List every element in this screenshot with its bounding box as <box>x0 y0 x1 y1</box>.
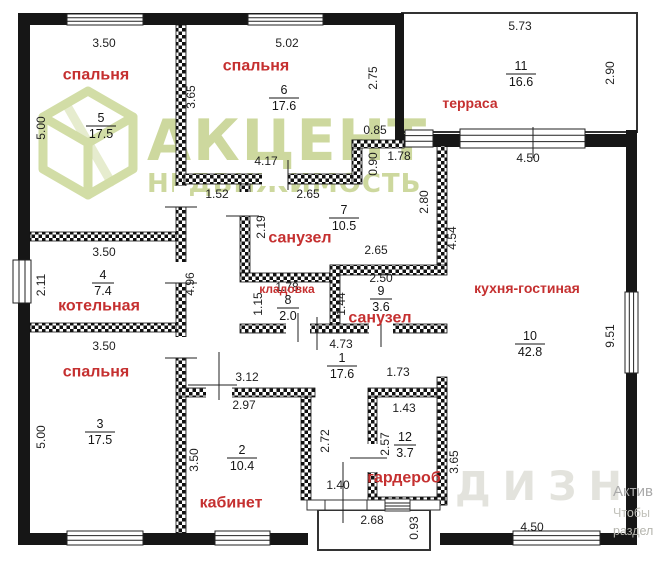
room-label: гардероб <box>367 470 441 487</box>
dimension-label: 3.50 <box>92 36 116 50</box>
partition-wardrobe-top <box>368 388 447 397</box>
wall-bedroom6-terrace <box>395 13 404 147</box>
brand-logo-icon <box>43 91 133 195</box>
room-number: 11 <box>515 59 528 73</box>
dimension-label: 1.40 <box>326 478 350 492</box>
corner-note: Актив Чтобы раздел <box>613 483 653 538</box>
room-number: 3 <box>97 417 104 431</box>
dimension-label: 3.50 <box>187 448 201 472</box>
corner-note-line2: Чтобы <box>613 506 650 520</box>
faint-watermark-text: ДИЗН <box>455 464 634 510</box>
window-office-bottom <box>215 531 270 545</box>
dimension-label: 1.78 <box>387 149 411 163</box>
dimension-label: 1.73 <box>386 365 410 379</box>
window-bedroom5-top <box>67 14 143 25</box>
dimension-label: 1.44 <box>334 292 348 316</box>
room-area: 10.5 <box>332 219 356 233</box>
dimension-label: 3.50 <box>92 339 116 353</box>
dimension-label: 2.75 <box>366 66 380 90</box>
dimension-label: 5.00 <box>34 116 48 140</box>
dimension-label: 3.12 <box>235 370 259 384</box>
partition-office-top <box>180 388 315 397</box>
room-label: спальня <box>63 364 129 381</box>
room-label: кабинет <box>200 495 263 512</box>
dimension-label: 5.02 <box>275 36 299 50</box>
dimension-label: 2.97 <box>232 398 256 412</box>
partition-storage-wc9-bottom <box>240 324 447 333</box>
window-hall-terrace <box>405 130 433 147</box>
floor-plan-image: АКЦЕНТ НЕДВИЖИМОСТЬ ДИЗН <box>0 0 661 569</box>
room-area: 17.5 <box>88 433 112 447</box>
room-area: 10.4 <box>230 459 254 473</box>
room-area: 16.6 <box>509 75 533 89</box>
entrance-door-opening <box>325 500 367 510</box>
room-area: 3.7 <box>396 446 413 460</box>
dimension-label: 1.43 <box>392 401 416 415</box>
room-number: 10 <box>523 329 537 343</box>
room-label: терраса <box>442 95 497 111</box>
entrance-threshold <box>367 500 385 510</box>
room-label: котельная <box>58 298 140 315</box>
room-area: 17.6 <box>330 367 354 381</box>
room-label: кухня-гостиная <box>474 280 580 296</box>
room-area: 3.6 <box>372 300 389 314</box>
door-opening-bedroom6 <box>262 172 288 186</box>
dimension-label: 4.50 <box>516 151 540 165</box>
dimension-label: 5.00 <box>34 425 48 449</box>
room-label: спальня <box>63 67 129 84</box>
dimension-label: 2.11 <box>34 273 48 296</box>
partition-wardrobe-right <box>437 388 447 505</box>
dimension-label: 0.90 <box>366 152 380 176</box>
dimension-label: 3.50 <box>92 245 116 259</box>
dimension-label: 0.85 <box>363 123 387 137</box>
partition-boiler-top <box>30 232 176 241</box>
room-label: спальня <box>223 58 289 75</box>
room-number: 9 <box>378 284 385 298</box>
room-area: 2.0 <box>279 309 296 323</box>
entrance-area <box>307 499 440 511</box>
dimension-label: 2.80 <box>417 190 431 214</box>
dimension-label: 3.65 <box>447 450 461 474</box>
entrance-threshold <box>410 500 440 510</box>
room-number: 5 <box>98 111 105 125</box>
dimension-label: 0.93 <box>407 516 421 540</box>
partition-boiler-bottom <box>30 323 176 332</box>
partition-office-right <box>301 397 311 500</box>
room-area: 17.5 <box>89 127 113 141</box>
door-opening-wc7 <box>238 192 252 216</box>
dimension-label: 2.68 <box>360 513 384 527</box>
dimension-label: 4.17 <box>254 154 278 168</box>
room-number: 6 <box>281 83 288 97</box>
room-number: 7 <box>341 203 348 217</box>
room-number: 12 <box>398 430 412 444</box>
window-kitchen-right <box>625 292 638 373</box>
dimension-label: 9.51 <box>603 324 617 348</box>
room-number: 2 <box>239 443 246 457</box>
dimension-label: 2.65 <box>364 243 388 257</box>
room-number: 1 <box>339 351 346 365</box>
dimension-label: 1.52 <box>205 187 229 201</box>
window-kitchen-terrace <box>460 129 585 148</box>
dimension-label: 2.57 <box>378 432 392 456</box>
door-opening-bedroom5 <box>174 186 188 207</box>
dimension-label: 2.19 <box>254 215 268 239</box>
corner-note-line3: раздел <box>613 524 653 538</box>
dimension-label: 2.65 <box>296 187 320 201</box>
window-bedroom3-bottom <box>67 531 143 545</box>
room-area: 7.4 <box>94 284 111 298</box>
entrance-threshold <box>307 500 325 510</box>
window-boiler-left <box>13 260 31 303</box>
partition-kitchen-passage <box>437 377 447 388</box>
room-number: 8 <box>285 293 292 307</box>
room-area: 17.6 <box>272 99 296 113</box>
room-label: санузел <box>268 230 331 247</box>
door-opening-bedroom3 <box>174 337 188 358</box>
dimension-label: 3.65 <box>184 85 198 109</box>
dimension-label: 2.72 <box>318 429 332 453</box>
partition-notch-horizontal <box>352 140 404 148</box>
dimension-label: 4.54 <box>445 226 459 250</box>
dimension-label: 4.50 <box>520 520 544 534</box>
dimension-label: 2.50 <box>369 271 393 285</box>
dimension-label: 4.96 <box>183 272 197 296</box>
dimension-label: 4.73 <box>329 337 353 351</box>
corner-note-line1: Актив <box>613 483 653 500</box>
dimension-label: 2.90 <box>603 61 617 85</box>
room-number: 4 <box>100 268 107 282</box>
dimension-label: 5.73 <box>508 19 532 33</box>
room-area: 42.8 <box>518 345 542 359</box>
window-bedroom6-top <box>248 14 323 25</box>
floor-plan-svg: АКЦЕНТ НЕДВИЖИМОСТЬ ДИЗН <box>0 0 661 569</box>
